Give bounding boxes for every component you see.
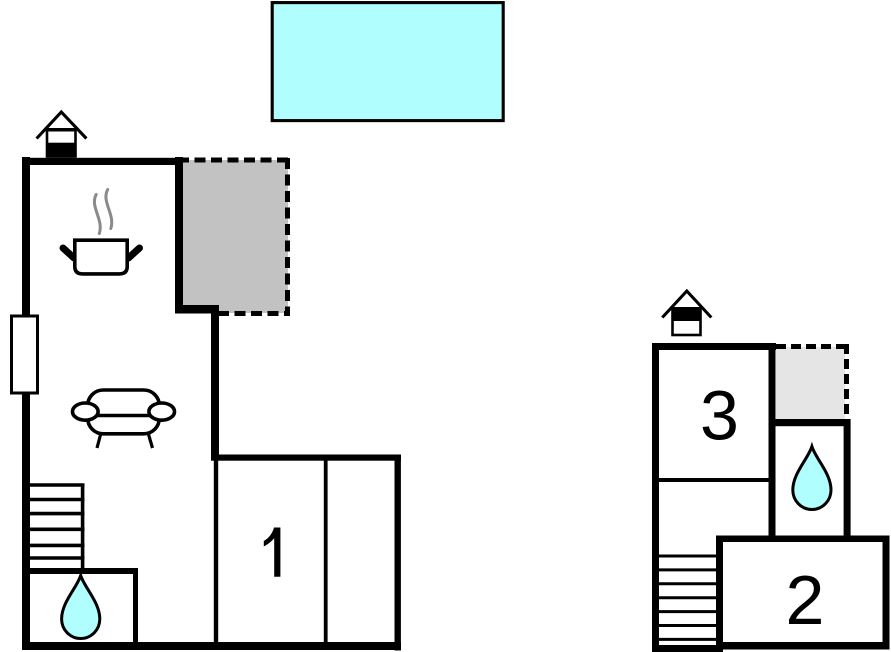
svg-text:3: 3 <box>700 377 739 455</box>
svg-text:2: 2 <box>786 561 825 639</box>
